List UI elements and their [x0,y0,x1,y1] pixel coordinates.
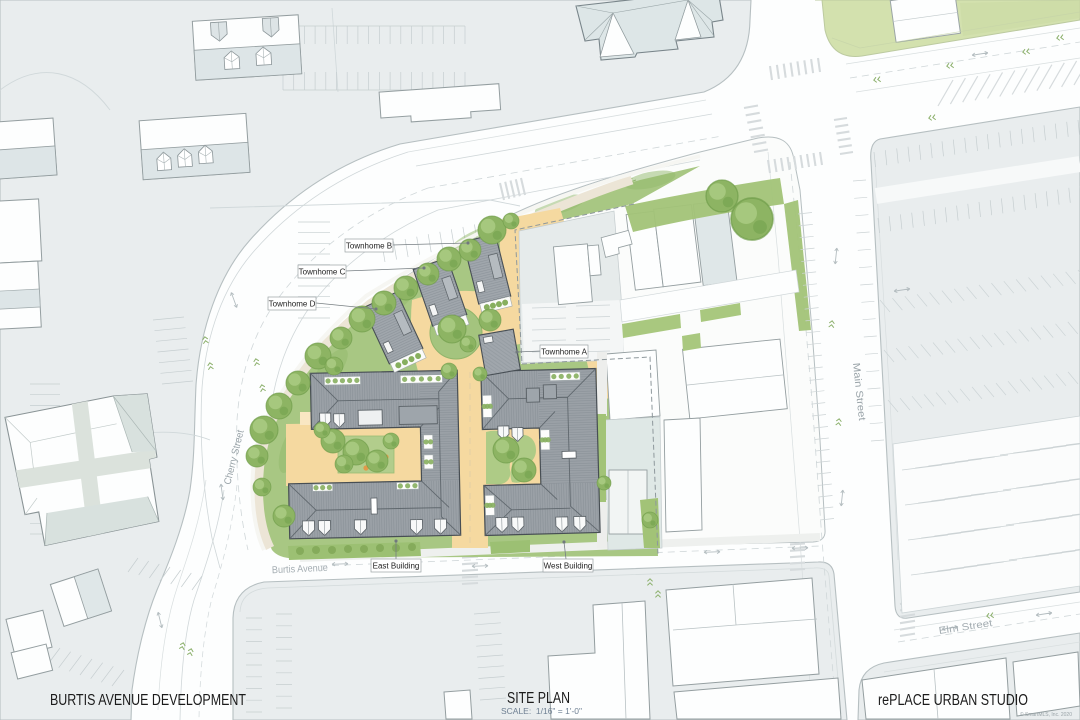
svg-text:Townhome C: Townhome C [299,267,346,276]
svg-text:West Building: West Building [544,561,593,570]
svg-text:SCALE: 1/16" = 1'-0": SCALE: 1/16" = 1'-0" [501,707,582,716]
svg-text:Townhome D: Townhome D [269,299,316,308]
svg-text:Townhome B: Townhome B [346,241,392,250]
svg-text:© SmartMLS, Inc. 2020: © SmartMLS, Inc. 2020 [1020,711,1072,718]
svg-text:East Building: East Building [373,561,420,570]
svg-text:BURTIS AVENUE DEVELOPMENT: BURTIS AVENUE DEVELOPMENT [50,692,246,709]
svg-text:SITE PLAN: SITE PLAN [507,690,570,707]
svg-text:Townhome A: Townhome A [541,347,587,356]
svg-text:rePLACE URBAN STUDIO: rePLACE URBAN STUDIO [878,692,1028,709]
